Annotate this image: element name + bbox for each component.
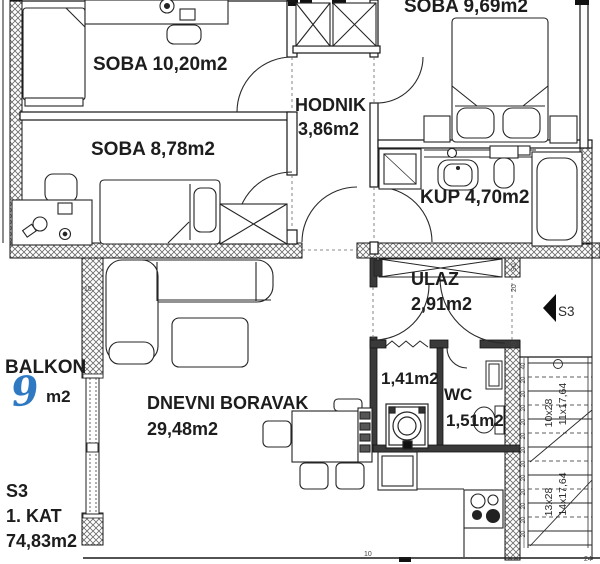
bed-single <box>23 8 85 100</box>
burner <box>471 494 485 508</box>
desk <box>12 200 92 245</box>
bedroom3-furniture <box>12 174 287 245</box>
compass-arrow-icon <box>543 294 556 322</box>
dining-table <box>292 411 358 462</box>
stair-labels: 10x28 11x17,64 13x28 14x17,64 <box>543 383 569 517</box>
nightstand <box>550 116 577 143</box>
dining-chair <box>263 421 291 447</box>
stair-flight-label: 10x28 <box>543 399 555 428</box>
room-area-unit-balkon: m2 <box>46 388 71 406</box>
svg-text:20: 20 <box>521 404 527 411</box>
coffee-table <box>172 318 248 367</box>
svg-text:40: 40 <box>521 362 527 369</box>
bedroom2-furniture <box>424 18 577 143</box>
svg-text:20: 20 <box>521 390 527 397</box>
burner <box>473 511 482 520</box>
burner <box>487 510 500 523</box>
unit-floor: 1. KAT <box>6 507 62 526</box>
room-area-ulaz: 2,91m2 <box>411 295 472 314</box>
svg-text:20: 20 <box>521 418 527 425</box>
desk <box>85 0 228 24</box>
room-label-dnevni: DNEVNI BORAVAK <box>147 394 308 413</box>
unit-total-area: 74,83m2 <box>6 532 77 551</box>
stove <box>464 490 503 528</box>
balcony-window <box>83 374 103 518</box>
hallway-wardrobes <box>296 3 376 46</box>
chair <box>45 174 77 202</box>
floor-plan: 10x28 11x17,64 13x28 14x17,64 40 20 20 2… <box>0 0 600 564</box>
room-area-dnevni: 29,48m2 <box>147 420 218 439</box>
svg-text:20: 20 <box>511 284 518 292</box>
room-area-util: 1,41m2 <box>381 370 439 388</box>
svg-text:20: 20 <box>521 474 527 481</box>
svg-text:20: 20 <box>521 516 527 523</box>
living-room-furniture <box>106 260 372 489</box>
svg-text:20: 20 <box>521 460 527 467</box>
svg-text:40: 40 <box>511 341 518 349</box>
room-label-wc: WC <box>444 386 472 404</box>
room-label-hodnik: HODNIK <box>295 96 366 115</box>
folding-door <box>385 341 428 347</box>
handwritten-area-value: 9 <box>9 367 42 417</box>
svg-text:24: 24 <box>584 556 592 563</box>
room-area-hodnik: 3,86m2 <box>298 120 359 139</box>
svg-text:20: 20 <box>521 432 527 439</box>
compass-label: S3 <box>558 304 575 319</box>
room-label-soba2: SOBA 9,69m2 <box>404 0 528 17</box>
floor-plan-drawing: 10x28 11x17,64 13x28 14x17,64 40 20 20 2… <box>0 0 600 564</box>
svg-text:20: 20 <box>521 446 527 453</box>
utility-room <box>385 341 428 449</box>
svg-text:20: 20 <box>521 376 527 383</box>
chair <box>167 25 201 44</box>
stair-flight-label: 11x17,64 <box>557 383 569 426</box>
pillow <box>194 188 216 232</box>
dining-chair <box>300 463 328 489</box>
pillow <box>503 108 540 138</box>
svg-text:20: 20 <box>521 530 527 537</box>
room-label-kup: KUP 4,70m2 <box>420 188 530 208</box>
unit-id: S3 <box>6 482 28 501</box>
room-label-ulaz: ULAZ <box>411 270 459 289</box>
pillow <box>457 108 494 138</box>
bedroom1-furniture <box>23 0 228 106</box>
svg-text:10: 10 <box>364 551 372 558</box>
toilet-tank <box>490 146 518 158</box>
svg-text:15: 15 <box>84 286 92 293</box>
svg-text:20: 20 <box>521 488 527 495</box>
kitchen <box>378 452 503 557</box>
compass: S3 <box>543 294 575 322</box>
room-label-soba1: SOBA 10,20m2 <box>93 55 227 75</box>
room-area-wc: 1,51m2 <box>446 412 504 430</box>
stair-flight-label: 14x17,64 <box>557 472 569 515</box>
svg-text:20: 20 <box>521 502 527 509</box>
nightstand <box>424 116 450 142</box>
sofa-end <box>109 342 154 364</box>
toilet <box>494 158 514 188</box>
stair-flight-label: 13x28 <box>543 488 555 517</box>
svg-text:90: 90 <box>511 263 518 271</box>
room-label-soba3: SOBA 8,78m2 <box>91 140 215 160</box>
dining-chair <box>336 463 364 489</box>
burner <box>488 495 498 505</box>
faucet <box>448 149 457 158</box>
